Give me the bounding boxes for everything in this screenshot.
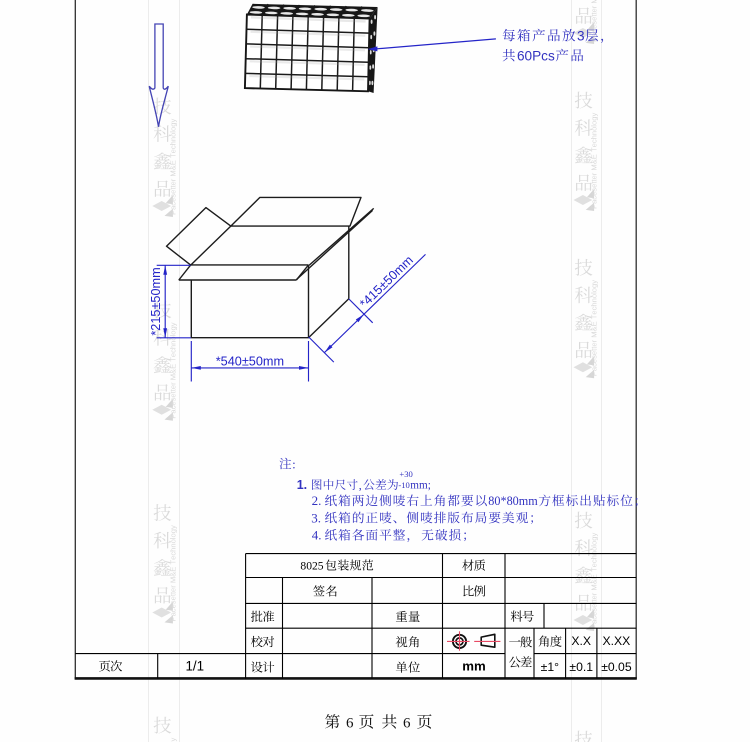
svg-text:80*80mm: 80*80mm: [488, 494, 538, 508]
svg-text:Pacesetter M&E Technology: Pacesetter M&E Technology: [590, 533, 599, 629]
svg-text:*215±50mm: *215±50mm: [149, 267, 163, 335]
svg-text:60Pcs: 60Pcs: [517, 48, 555, 63]
svg-text:+30: +30: [399, 469, 412, 479]
svg-text:3: 3: [577, 28, 585, 43]
svg-text:Pacesetter M&E Technology: Pacesetter M&E Technology: [590, 280, 599, 376]
svg-text:8025: 8025: [300, 560, 323, 573]
svg-text:4.: 4.: [312, 528, 322, 543]
svg-text:Pacesetter M&E Technology: Pacesetter M&E Technology: [169, 119, 178, 215]
svg-text:Pacesetter M&E Technology: Pacesetter M&E Technology: [169, 322, 178, 418]
svg-text:2.: 2.: [312, 493, 322, 508]
svg-text:±0.1: ±0.1: [569, 660, 593, 674]
svg-text::: :: [292, 456, 296, 471]
svg-text:Pacesetter M&E Technology: Pacesetter M&E Technology: [169, 525, 178, 621]
svg-text:X.XX: X.XX: [603, 634, 631, 648]
svg-text:X.X: X.X: [571, 634, 591, 648]
svg-text:6: 6: [346, 715, 354, 731]
svg-text:1/1: 1/1: [185, 658, 204, 673]
svg-text:*540±50mm: *540±50mm: [216, 355, 284, 369]
svg-text:mm: mm: [462, 659, 485, 674]
svg-text:6: 6: [403, 715, 411, 731]
svg-text:mm;: mm;: [410, 480, 431, 492]
svg-text:Pacesetter M&E Technology: Pacesetter M&E Technology: [590, 0, 599, 42]
svg-text:1.: 1.: [297, 478, 307, 492]
svg-text:,: ,: [359, 478, 362, 492]
svg-text:-10: -10: [398, 480, 409, 490]
svg-text:±0.05: ±0.05: [601, 660, 632, 674]
svg-text:Pacesetter M&E Technology: Pacesetter M&E Technology: [590, 113, 599, 209]
svg-text:Pacesetter M&E Technology: Pacesetter M&E Technology: [169, 738, 178, 742]
svg-text:3.: 3.: [311, 510, 321, 525]
svg-text:±1°: ±1°: [541, 660, 559, 674]
